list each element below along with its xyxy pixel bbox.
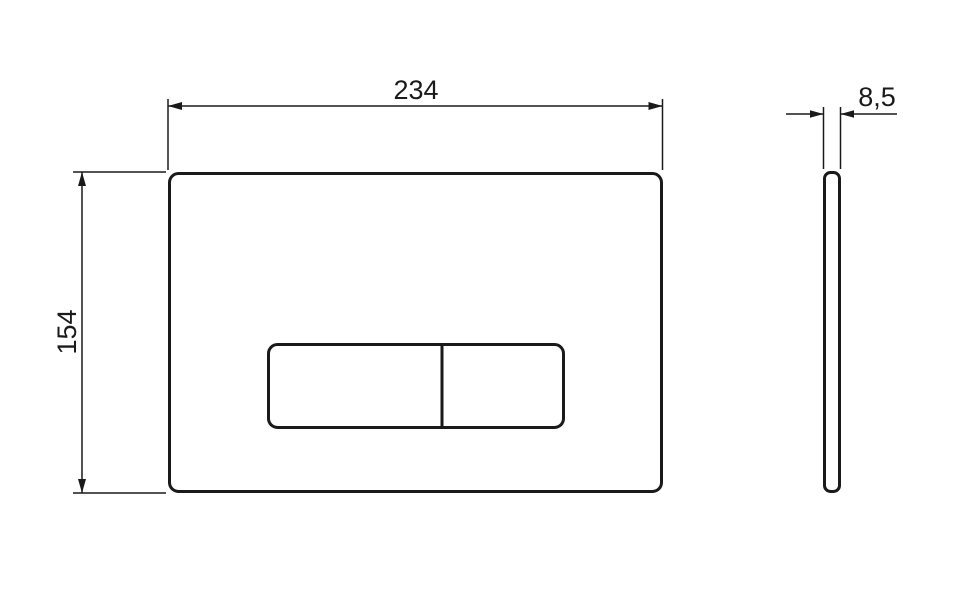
height-dimension-label: 154 (52, 309, 82, 354)
plate-front-outline (170, 174, 662, 492)
thickness-dimension: 8,5 (786, 82, 897, 169)
width-dimension-label: 234 (393, 75, 438, 105)
flush-plate-dimension-drawing: 234 154 8,5 (0, 0, 957, 598)
plate-side-outline (825, 173, 840, 492)
side-view (825, 173, 840, 492)
technical-drawing-page: 234 154 8,5 (0, 0, 957, 598)
thickness-dimension-label: 8,5 (858, 82, 896, 112)
height-arrowhead-top (78, 172, 86, 186)
height-dimension: 154 (52, 172, 166, 493)
thickness-arrowhead-right (841, 110, 855, 118)
width-arrowhead-right (649, 102, 663, 110)
front-view (170, 174, 662, 492)
width-arrowhead-left (168, 102, 182, 110)
width-dimension: 234 (168, 75, 663, 170)
thickness-arrowhead-left (810, 110, 824, 118)
height-arrowhead-bottom (78, 479, 86, 493)
flush-buttons-outline (269, 345, 564, 428)
